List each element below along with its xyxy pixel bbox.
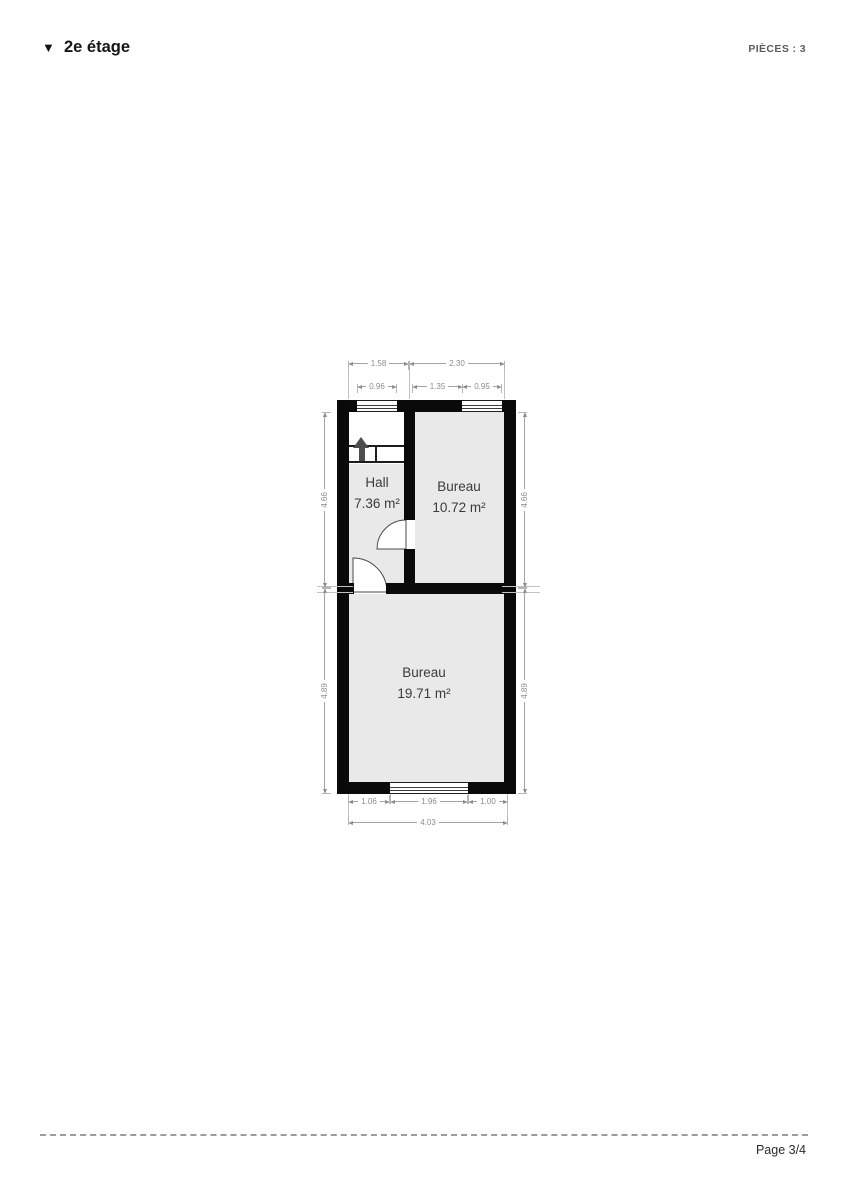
dimension-bottom-inner-1: 1.06 — [348, 796, 390, 807]
floorplan-page: ▼ 2e étage PIÈCES : 3 — [0, 0, 848, 1200]
dimension-top-outer-2: 2.30 — [409, 358, 505, 369]
section-collapse-icon[interactable]: ▼ — [42, 40, 55, 56]
rooms-count-label: PIÈCES : 3 — [748, 43, 806, 55]
extension-line — [409, 368, 410, 399]
window-glass-line — [357, 408, 397, 409]
dimension-top-outer-1: 1.58 — [348, 358, 409, 369]
room-area: 10.72 m² — [404, 497, 514, 518]
dimension-label: 4.66 — [319, 489, 330, 511]
window-glass-line — [462, 405, 502, 406]
dimension-label: 1.35 — [427, 381, 449, 392]
room-area: 19.71 m² — [369, 683, 479, 704]
window-top-bureau — [462, 400, 502, 412]
dimension-top-inner-1: 0.96 — [357, 381, 397, 392]
stairs-up-arrow-stem — [359, 447, 365, 461]
dimension-label: 1.06 — [358, 796, 380, 807]
dimension-label: 4.66 — [519, 489, 530, 511]
window-glass-line — [357, 405, 397, 406]
wall-right — [504, 400, 516, 794]
dimension-right-upper: 4.66 — [519, 412, 530, 588]
dimension-label: 4.03 — [417, 817, 439, 828]
dimension-label: 4.89 — [519, 680, 530, 702]
dimension-right-lower: 4.89 — [519, 588, 530, 794]
dimension-left-lower: 4.89 — [319, 588, 330, 794]
dimension-label: 2.30 — [446, 358, 468, 369]
window-glass-line — [390, 787, 468, 788]
dimension-label: 1.00 — [477, 796, 499, 807]
room-label-bureau-small: Bureau 10.72 m² — [404, 476, 514, 518]
room-name: Bureau — [404, 476, 514, 497]
extension-line — [504, 368, 505, 399]
window-top-hall — [357, 400, 397, 412]
room-label-bureau-large: Bureau 19.71 m² — [369, 662, 479, 704]
dimension-bottom-inner-2: 1.96 — [390, 796, 468, 807]
wall-interior-horizontal-main — [386, 583, 504, 594]
dimension-top-inner-2: 1.35 — [412, 381, 463, 392]
door-arc-hall-bureau — [377, 520, 406, 549]
dimension-label: 0.95 — [471, 381, 493, 392]
window-bottom-bureau — [390, 782, 468, 794]
window-glass-line — [462, 408, 502, 409]
dimension-label: 0.96 — [366, 381, 388, 392]
dimension-label: 4.89 — [319, 680, 330, 702]
section-title: 2e étage — [64, 36, 130, 58]
window-glass-line — [390, 790, 468, 791]
dimension-label: 1.96 — [418, 796, 440, 807]
extension-line — [348, 368, 349, 399]
dimension-top-inner-3: 0.95 — [462, 381, 502, 392]
door-arc-hall-bureau-large — [353, 558, 387, 592]
dimension-label: 1.58 — [368, 358, 390, 369]
wall-interior-vertical-stub — [404, 549, 415, 583]
footer-divider — [40, 1134, 808, 1136]
wall-left — [337, 400, 349, 794]
dimension-bottom-inner-3: 1.00 — [468, 796, 508, 807]
dimension-left-upper: 4.66 — [319, 412, 330, 588]
dimension-bottom-total: 4.03 — [348, 817, 508, 828]
page-number-label: Page 3/4 — [756, 1143, 806, 1157]
stairs-step-divider — [375, 445, 377, 463]
room-name: Bureau — [369, 662, 479, 683]
